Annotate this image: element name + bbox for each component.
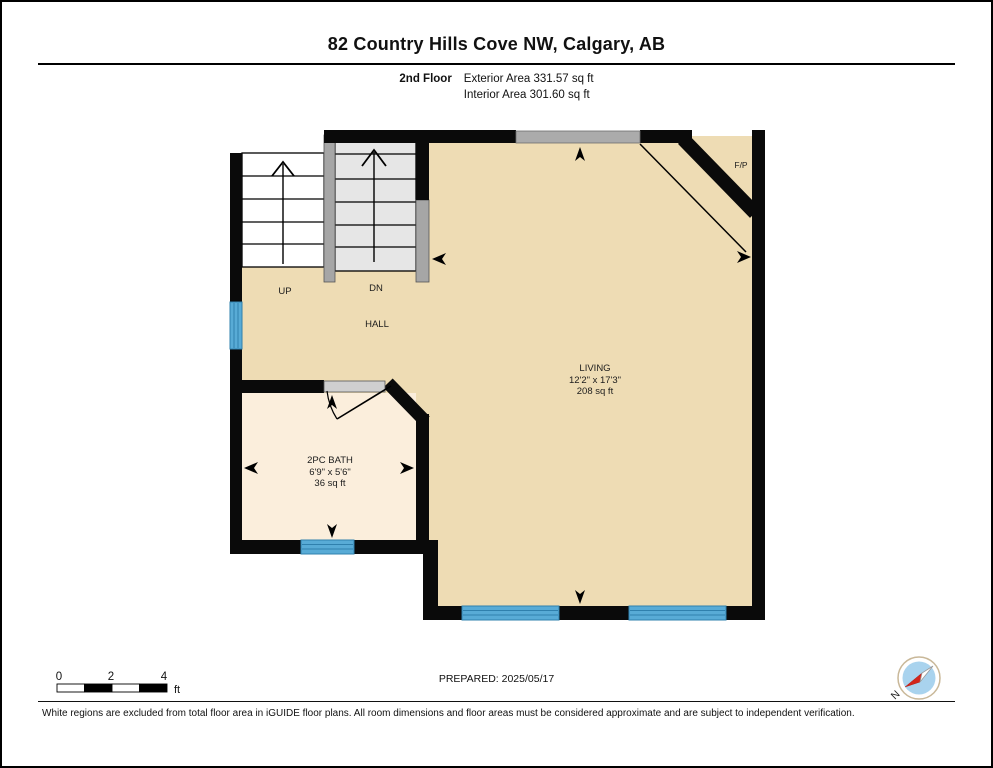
stair-railing-left bbox=[324, 135, 335, 282]
scale-unit-label: ft bbox=[174, 684, 180, 696]
stairs-down-label: DN bbox=[369, 283, 383, 294]
living-wall-opening bbox=[516, 131, 640, 143]
bath-door-opening bbox=[324, 381, 385, 392]
window-living-right bbox=[629, 606, 726, 620]
disclaimer-text: White regions are excluded from total fl… bbox=[42, 708, 951, 719]
living-room-area: 208 sq ft bbox=[577, 386, 614, 397]
prepared-date: PREPARED: 2025/05/17 bbox=[2, 673, 991, 685]
window-bath bbox=[301, 540, 354, 554]
window-left-wall bbox=[230, 302, 242, 349]
stairs-up-label: UP bbox=[278, 286, 291, 297]
hall-label: HALL bbox=[365, 319, 389, 330]
floorplan-drawing: UP DN HALL F/P LIVING 12'2" x 17'3" 208 … bbox=[2, 2, 993, 768]
floorplan-page: 82 Country Hills Cove NW, Calgary, AB 2n… bbox=[0, 0, 993, 768]
bath-dimensions: 6'9" x 5'6" bbox=[309, 467, 351, 478]
living-room-label: LIVING bbox=[579, 363, 610, 374]
bath-label: 2PC BATH bbox=[307, 455, 353, 466]
bath-area: 36 sq ft bbox=[314, 478, 346, 489]
living-room-dimensions: 12'2" x 17'3" bbox=[569, 375, 621, 386]
fireplace-label: F/P bbox=[734, 160, 748, 170]
window-living-left bbox=[462, 606, 559, 620]
footer-divider bbox=[38, 701, 955, 702]
staircase-down bbox=[335, 136, 416, 271]
stair-railing-right bbox=[416, 200, 429, 282]
staircase-up bbox=[242, 153, 324, 267]
